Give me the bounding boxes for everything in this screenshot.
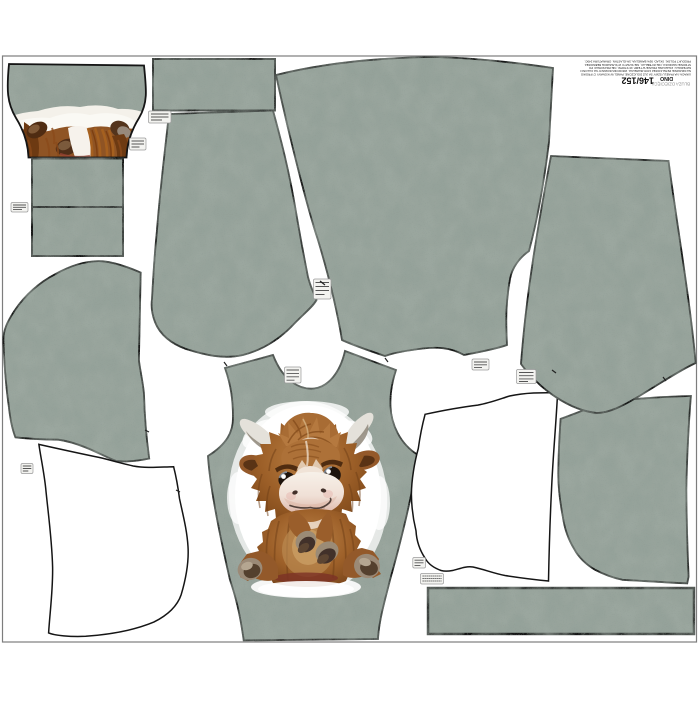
svg-text:BLUZA DZIECIĘCA: BLUZA DZIECIĘCA xyxy=(651,82,690,87)
svg-text:PRODUKT POLSKI. SKLAD: 95% BAW: PRODUKT POLSKI. SKLAD: 95% BAWELNA, 5% E… xyxy=(584,60,691,64)
